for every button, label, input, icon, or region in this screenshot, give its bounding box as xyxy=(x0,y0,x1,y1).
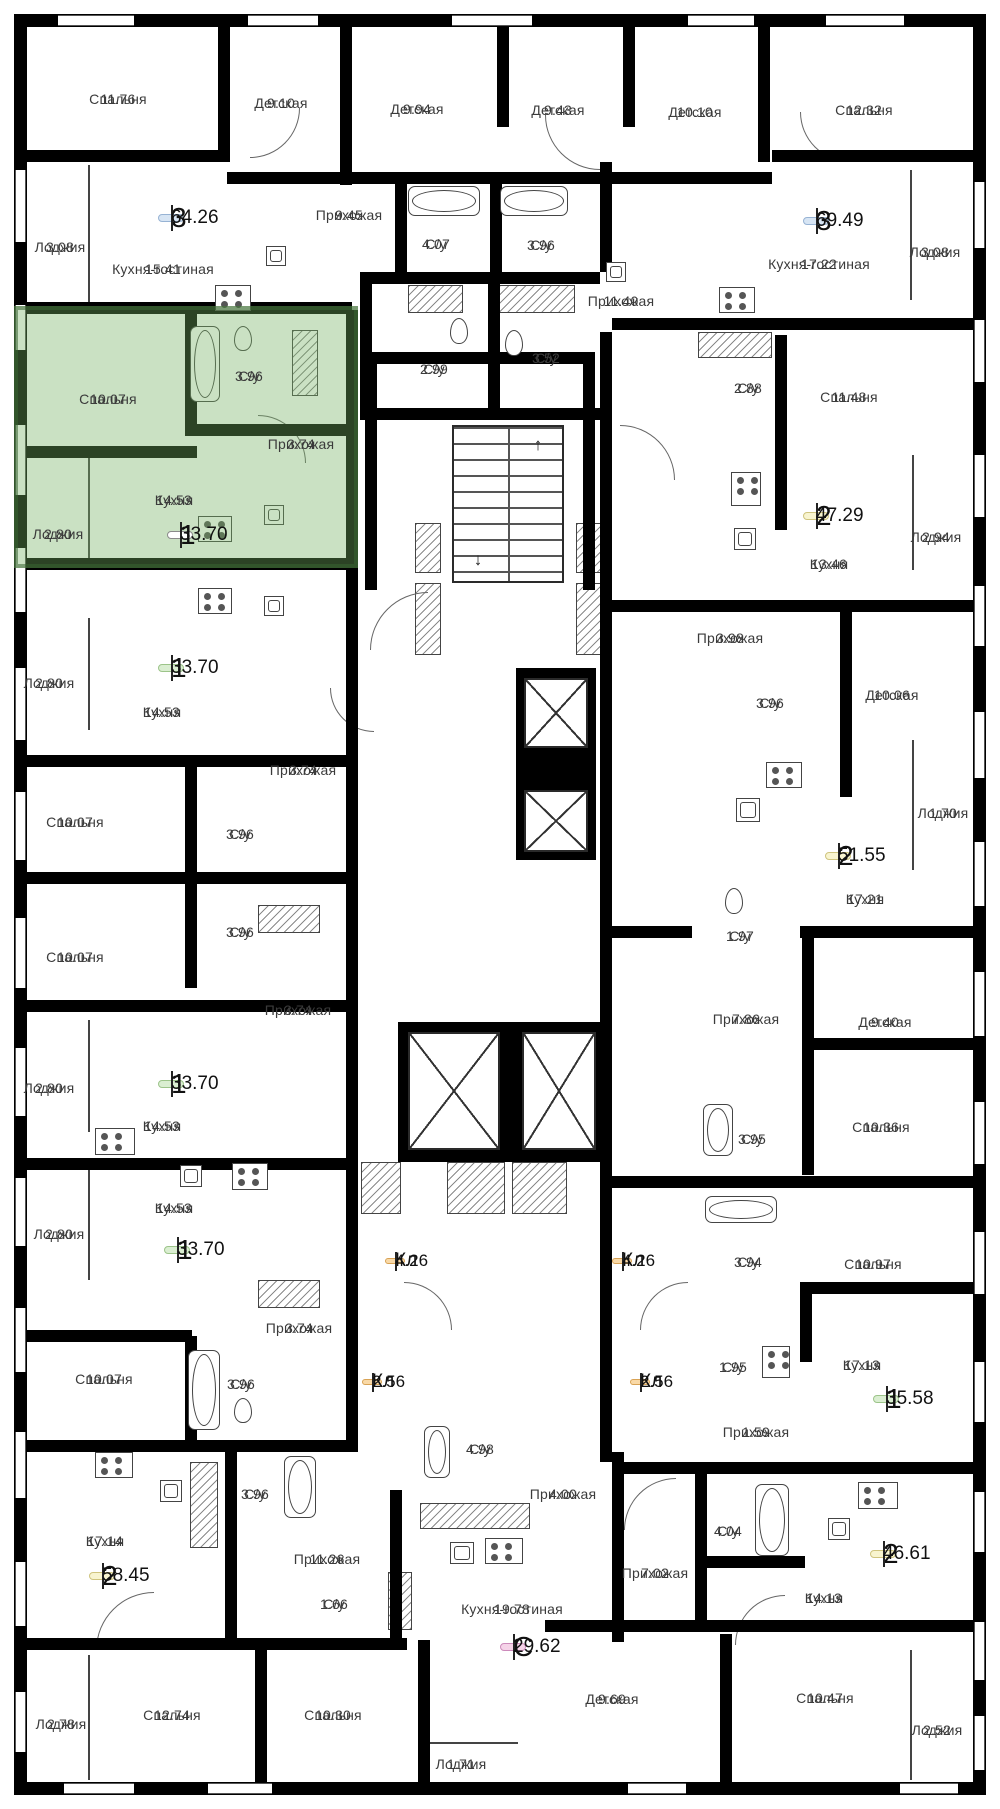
wall xyxy=(340,27,352,185)
bathtub-icon xyxy=(408,186,480,216)
wall xyxy=(225,1452,237,1638)
window xyxy=(974,320,985,382)
wall xyxy=(365,352,377,590)
wall xyxy=(497,27,509,127)
shaft-hatch xyxy=(190,1462,218,1548)
sink-icon xyxy=(160,1480,182,1502)
window xyxy=(15,918,26,988)
wall xyxy=(360,272,600,284)
staircase xyxy=(452,425,564,583)
window xyxy=(974,182,985,248)
wall xyxy=(517,172,772,184)
stove-icon xyxy=(95,1128,135,1155)
bathtub-icon xyxy=(424,1426,450,1478)
door-arc xyxy=(545,115,600,170)
glazing-line xyxy=(88,1168,90,1280)
wall xyxy=(27,150,227,162)
bathtub-icon xyxy=(500,186,568,216)
window xyxy=(688,15,754,26)
storage-badge[interactable]: Кл4.26 xyxy=(612,1258,632,1264)
storage-badge[interactable]: Кл4.26 xyxy=(385,1258,405,1264)
wall xyxy=(488,272,500,420)
shaft-hatch xyxy=(415,523,441,573)
door-arc xyxy=(404,1282,452,1330)
window xyxy=(974,1492,985,1552)
wall xyxy=(775,335,787,530)
shaft-hatch xyxy=(447,1162,505,1214)
shaft-hatch xyxy=(361,1162,401,1214)
window xyxy=(974,1232,985,1294)
glazing-line xyxy=(88,1020,90,1132)
window xyxy=(15,170,26,242)
toilet-icon xyxy=(234,1398,252,1423)
floor-plan: ↓ ↑ xyxy=(0,0,1000,1809)
window xyxy=(452,15,532,26)
shaft-hatch xyxy=(258,1280,320,1308)
wall xyxy=(227,172,517,184)
sink-icon xyxy=(266,246,286,266)
stairs-up-arrow: ↑ xyxy=(534,435,543,455)
wall xyxy=(695,1470,707,1620)
apartment-badge[interactable]: 247.29 xyxy=(803,512,829,520)
stove-icon xyxy=(719,287,755,313)
apartment-badge[interactable]: 369.49 xyxy=(803,217,829,225)
glazing-line xyxy=(910,1650,912,1780)
bathtub-icon xyxy=(705,1196,777,1223)
window xyxy=(58,15,134,26)
wall xyxy=(612,1462,973,1474)
elevator-shaft xyxy=(522,1032,596,1150)
window xyxy=(64,1783,134,1794)
apartment-badge[interactable]: 133.70 xyxy=(158,1080,184,1088)
window xyxy=(248,15,318,26)
wall xyxy=(612,600,973,612)
stair-divider xyxy=(508,427,510,581)
apartment-badge-highlighted[interactable]: 133.70 xyxy=(167,531,193,539)
shaft-hatch xyxy=(576,583,602,655)
wall xyxy=(545,1620,973,1632)
window xyxy=(15,1308,26,1372)
apartment-badge[interactable]: 258.45 xyxy=(89,1572,115,1580)
toilet-icon xyxy=(505,330,523,356)
stove-icon xyxy=(95,1452,133,1478)
sink-icon xyxy=(606,262,626,282)
door-arc xyxy=(370,592,428,650)
wall xyxy=(802,1038,973,1050)
shaft-hatch xyxy=(408,285,463,313)
wall xyxy=(758,27,770,162)
wall xyxy=(218,27,230,162)
stove-icon xyxy=(762,1346,790,1378)
sink-icon xyxy=(264,596,284,616)
apartment-badge[interactable]: 135.58 xyxy=(873,1395,899,1403)
elevator-shaft xyxy=(524,678,588,748)
window xyxy=(15,1178,26,1246)
wall xyxy=(27,1638,407,1650)
wall xyxy=(14,1782,986,1795)
bathtub-icon xyxy=(755,1484,789,1556)
wall xyxy=(27,1440,352,1452)
glazing-line xyxy=(910,170,912,300)
door-arc xyxy=(250,108,300,158)
window xyxy=(974,1362,985,1422)
window xyxy=(974,586,985,646)
window xyxy=(15,1692,26,1752)
wall xyxy=(395,172,407,272)
wall xyxy=(623,27,635,127)
wall xyxy=(14,14,27,1795)
window xyxy=(900,1783,958,1794)
wall xyxy=(695,1556,805,1568)
shaft-hatch xyxy=(258,905,320,933)
shaft-hatch xyxy=(490,285,575,313)
apartment-badge[interactable]: 246.61 xyxy=(870,1550,896,1558)
wall xyxy=(255,1650,267,1782)
wall xyxy=(612,926,692,938)
apartment-badge[interactable]: 133.70 xyxy=(158,664,184,672)
sink-icon xyxy=(450,1542,474,1564)
window xyxy=(628,1783,686,1794)
wall xyxy=(612,318,973,330)
stove-icon xyxy=(232,1163,268,1190)
wall xyxy=(600,332,612,1462)
window xyxy=(974,972,985,1036)
wall xyxy=(418,1640,430,1782)
glazing-line xyxy=(88,1655,90,1780)
bathtub-icon xyxy=(188,1350,220,1430)
storage-badge[interactable]: Кл2.56 xyxy=(630,1379,650,1385)
apartment-badge[interactable]: 133.70 xyxy=(164,1246,190,1254)
door-arc xyxy=(620,425,675,480)
window xyxy=(974,712,985,778)
apartment-badge[interactable]: 364.26 xyxy=(158,214,184,222)
wall xyxy=(490,172,502,272)
toilet-icon xyxy=(725,888,743,914)
window xyxy=(974,1102,985,1164)
window xyxy=(826,15,904,26)
window xyxy=(974,842,985,906)
wall xyxy=(185,767,197,872)
door-arc xyxy=(640,1282,688,1330)
wall xyxy=(365,352,595,364)
wall xyxy=(802,935,814,1175)
stairs-down-arrow: ↓ xyxy=(474,550,483,570)
wall xyxy=(27,1330,192,1342)
wall xyxy=(800,926,973,938)
glazing-line xyxy=(88,165,90,305)
stove-icon xyxy=(485,1538,523,1564)
wall xyxy=(720,1634,732,1782)
elevator-shaft xyxy=(524,790,588,852)
wall xyxy=(185,878,197,988)
sink-icon xyxy=(736,798,760,822)
storage-badge[interactable]: Кл2.56 xyxy=(362,1379,382,1385)
wall xyxy=(772,150,973,162)
window xyxy=(15,1562,26,1626)
glazing-line xyxy=(418,1742,518,1744)
window xyxy=(208,1783,272,1794)
wall xyxy=(360,408,612,420)
wall xyxy=(390,1490,402,1650)
stove-icon xyxy=(198,588,232,614)
shaft-hatch xyxy=(420,1503,530,1529)
toilet-icon xyxy=(450,318,468,344)
bathtub-icon xyxy=(703,1104,733,1156)
wall xyxy=(800,1282,973,1294)
sink-icon xyxy=(828,1518,850,1540)
stove-icon xyxy=(858,1482,898,1509)
window xyxy=(15,1432,26,1498)
glazing-line xyxy=(912,740,914,870)
stove-icon xyxy=(766,762,802,788)
glazing-line xyxy=(912,455,914,570)
wall xyxy=(800,1282,812,1362)
door-arc xyxy=(624,1478,676,1530)
wall xyxy=(612,1176,973,1188)
window xyxy=(974,1622,985,1680)
sink-icon xyxy=(734,528,756,550)
wall xyxy=(583,352,595,590)
wall xyxy=(612,1452,624,1642)
shaft-hatch xyxy=(512,1162,567,1214)
window xyxy=(974,1716,985,1770)
elevator-shaft xyxy=(408,1032,500,1150)
wall xyxy=(840,612,852,797)
apartment-badge[interactable]: 251.55 xyxy=(825,852,851,860)
window xyxy=(974,455,985,517)
stove-icon xyxy=(731,472,761,506)
glazing-line xyxy=(88,618,90,730)
shaft-hatch xyxy=(698,332,772,358)
sink-icon xyxy=(180,1165,202,1187)
bathtub-icon xyxy=(284,1456,316,1518)
studio-badge[interactable]: С29.62 xyxy=(500,1643,526,1651)
wall xyxy=(600,162,612,272)
window xyxy=(15,792,26,860)
